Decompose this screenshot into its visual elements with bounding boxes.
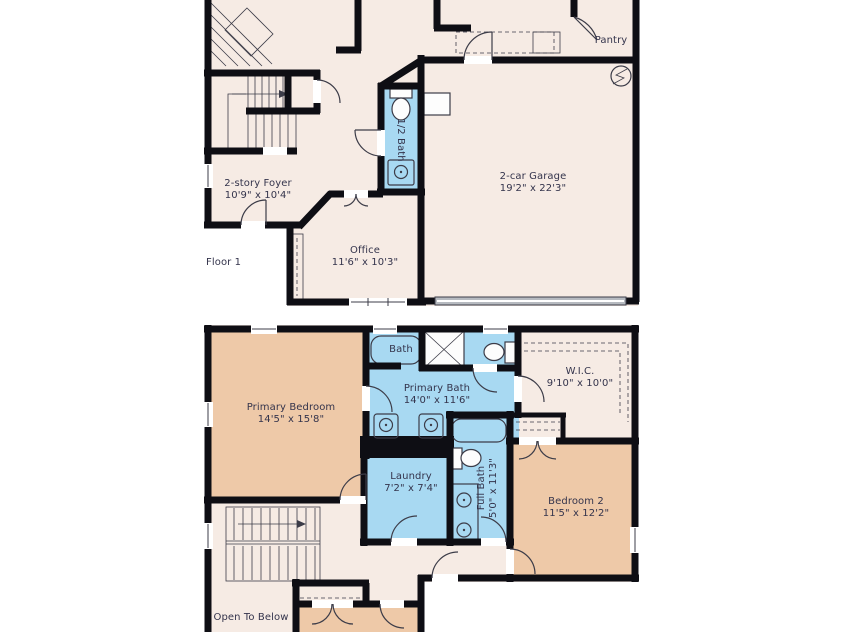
wic-label: W.I.C. 9'10" x 10'0": [547, 366, 613, 390]
laundry-room: [362, 453, 451, 543]
floorplan-svg: [0, 0, 843, 632]
garage-door: [435, 297, 626, 305]
pantry-label: Pantry: [595, 35, 628, 47]
bedroom2-label: Bedroom 2 11'5" x 12'2": [543, 496, 609, 520]
garage-label: 2-car Garage 19'2" x 22'3": [500, 171, 567, 195]
half-bath-toilet-icon: [390, 89, 412, 120]
floor1-plan: [203, 0, 639, 307]
water-heater-icon: [424, 93, 450, 115]
full-bath-label: Full Bath 5'0" x 11'3": [476, 458, 500, 518]
bath-label: Bath: [389, 344, 413, 356]
open-to-below-label: Open To Below: [214, 612, 289, 624]
shower-icon: [424, 331, 464, 368]
foyer-label: 2-story Foyer 10'9" x 10'4": [224, 178, 291, 202]
floorplan-image: Floor 1 2-story Foyer 10'9" x 10'4" 1/2 …: [0, 0, 843, 632]
wall-mass: [360, 436, 454, 458]
primary-bath-label: Primary Bath 14'0" x 11'6": [404, 383, 470, 407]
half-bath-label: 1/2 Bath: [394, 118, 406, 161]
primary-bedroom-label: Primary Bedroom 14'5" x 15'8": [247, 402, 336, 426]
floor1-title: Floor 1: [206, 257, 241, 269]
laundry-label: Laundry 7'2" x 7'4": [384, 471, 438, 495]
office-label: Office 11'6" x 10'3": [332, 245, 398, 269]
